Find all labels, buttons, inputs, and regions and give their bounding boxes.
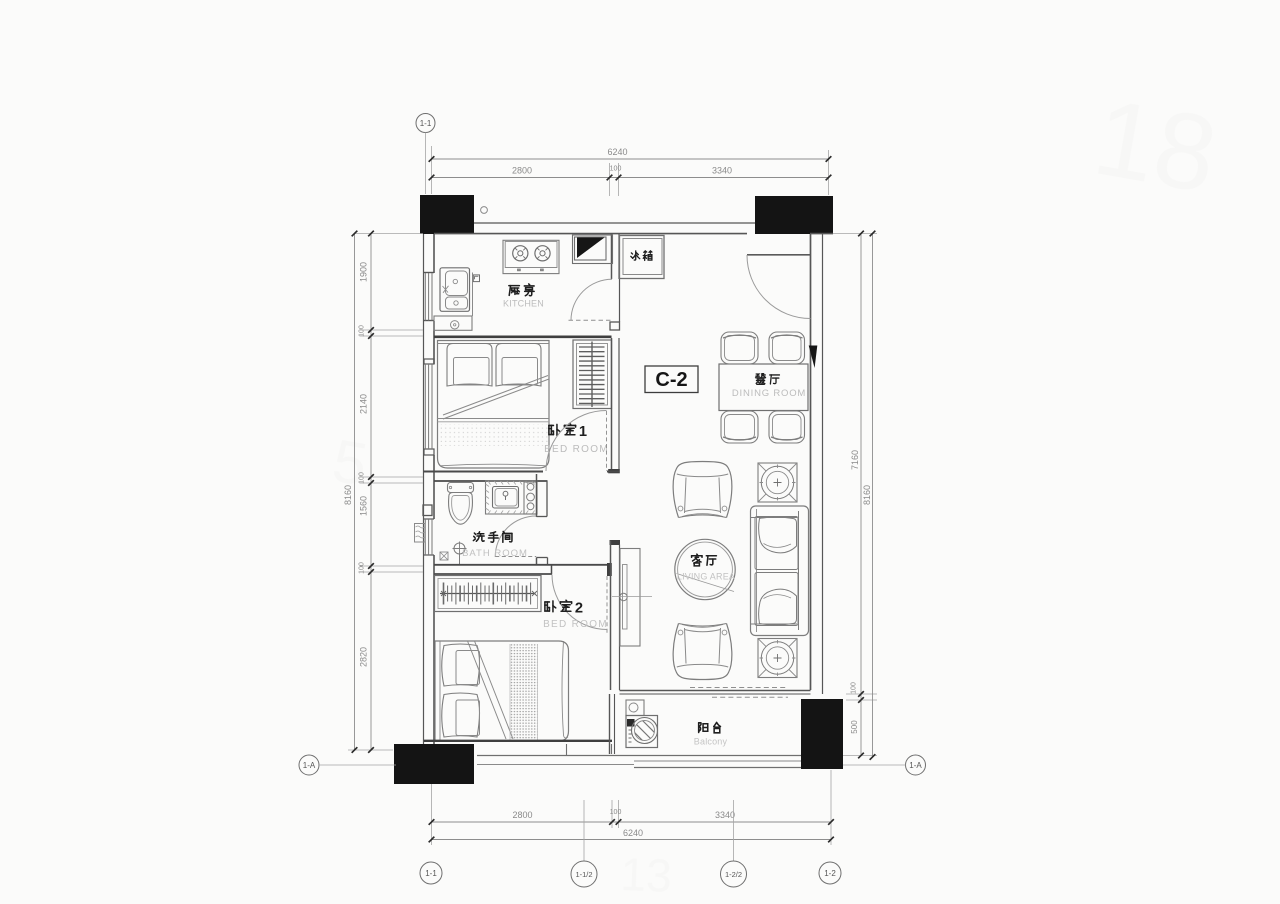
svg-text:100: 100	[359, 562, 366, 574]
svg-text:2800: 2800	[512, 810, 532, 820]
svg-text:6240: 6240	[623, 828, 643, 838]
svg-text:1-2: 1-2	[824, 869, 836, 878]
svg-text:1-A: 1-A	[909, 761, 922, 770]
svg-text:2820: 2820	[359, 647, 369, 667]
svg-text:1: 1	[579, 424, 587, 440]
svg-text:100: 100	[851, 682, 858, 694]
svg-text:7160: 7160	[850, 450, 860, 470]
svg-text:BED ROOM: BED ROOM	[543, 619, 608, 630]
svg-text:3340: 3340	[712, 166, 732, 176]
svg-text:2: 2	[575, 600, 583, 616]
svg-text:1560: 1560	[359, 496, 369, 516]
svg-text:BATH ROOM: BATH ROOM	[462, 548, 528, 559]
svg-text:1-1/2: 1-1/2	[575, 870, 592, 879]
svg-text:1-1: 1-1	[425, 869, 437, 878]
svg-text:LIVING AREA: LIVING AREA	[677, 572, 735, 582]
svg-text:100: 100	[359, 472, 366, 484]
svg-text:8160: 8160	[862, 485, 872, 505]
svg-text:Balcony: Balcony	[694, 737, 728, 747]
svg-text:100: 100	[610, 166, 622, 173]
svg-text:KITCHEN: KITCHEN	[503, 299, 544, 309]
svg-text:1-1: 1-1	[420, 119, 432, 128]
svg-text:3340: 3340	[715, 810, 735, 820]
svg-text:C-2: C-2	[655, 369, 687, 391]
svg-text:1-2/2: 1-2/2	[725, 870, 742, 879]
svg-text:DINING ROOM: DINING ROOM	[732, 388, 806, 399]
svg-text:6240: 6240	[607, 147, 627, 157]
svg-text:2140: 2140	[359, 394, 369, 414]
svg-text:2800: 2800	[512, 166, 532, 176]
svg-text:500: 500	[850, 720, 859, 734]
svg-text:13: 13	[620, 848, 673, 902]
svg-text:8160: 8160	[343, 485, 353, 505]
svg-text:100: 100	[610, 809, 622, 816]
svg-text:BED ROOM: BED ROOM	[544, 444, 609, 455]
svg-text:100: 100	[359, 325, 366, 337]
svg-text:18: 18	[1086, 75, 1225, 215]
svg-text:1-A: 1-A	[303, 761, 316, 770]
svg-text:1900: 1900	[359, 262, 369, 282]
